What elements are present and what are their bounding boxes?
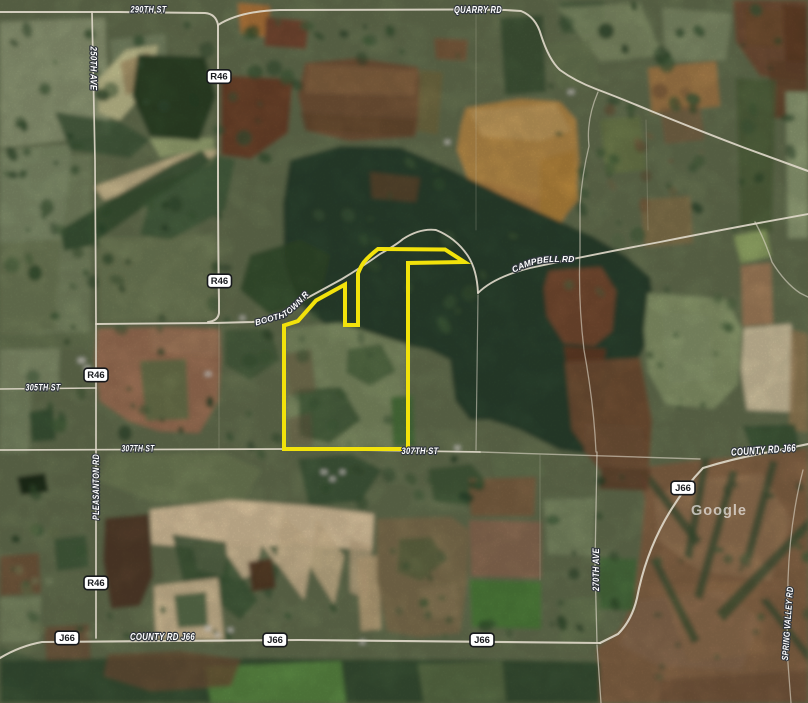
- svg-text:307TH ST: 307TH ST: [122, 444, 156, 454]
- svg-text:J66: J66: [474, 635, 490, 646]
- svg-text:307TH ST: 307TH ST: [402, 446, 440, 457]
- svg-text:R46: R46: [211, 276, 228, 287]
- svg-text:250TH AVE: 250TH AVE: [89, 46, 99, 91]
- svg-text:Google: Google: [691, 503, 747, 519]
- svg-text:270TH AVE: 270TH AVE: [591, 547, 601, 591]
- svg-text:PLEASANTON RD: PLEASANTON RD: [91, 454, 101, 520]
- svg-text:290TH ST: 290TH ST: [130, 5, 168, 15]
- svg-text:305TH ST: 305TH ST: [26, 383, 62, 393]
- svg-text:J66: J66: [675, 483, 691, 494]
- svg-text:QUARRY RD: QUARRY RD: [454, 5, 502, 16]
- svg-text:R46: R46: [87, 578, 104, 589]
- svg-text:R46: R46: [87, 370, 104, 381]
- svg-text:J66: J66: [59, 633, 75, 644]
- svg-text:R46: R46: [210, 72, 227, 83]
- svg-text:J66: J66: [267, 635, 283, 646]
- svg-text:COUNTY RD J66: COUNTY RD J66: [130, 632, 195, 643]
